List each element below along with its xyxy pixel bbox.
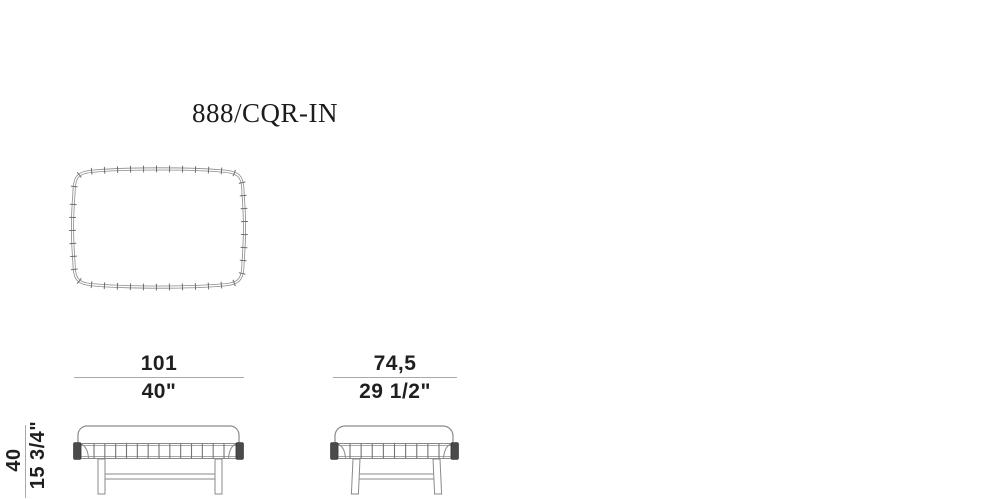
band-end-cap-left xyxy=(331,443,339,460)
height-dimension-line xyxy=(25,425,26,498)
stitch-tick xyxy=(91,281,92,288)
front-elevation-drawing xyxy=(65,418,260,499)
stretcher-side xyxy=(359,474,435,479)
stitch-tick xyxy=(221,282,222,289)
product-code: 888/CQR-IN xyxy=(192,98,338,129)
front-right-leg xyxy=(215,459,222,494)
height-metric: 40 xyxy=(3,422,25,498)
side-depth-imperial: 29 1/2" xyxy=(333,381,457,403)
stitch-tick xyxy=(91,168,92,175)
stretcher-front xyxy=(105,474,215,479)
band-end-cap-right xyxy=(236,443,244,460)
stitch-tick xyxy=(221,168,222,175)
spec-sheet: 888/CQR-IN 101 40" 74,5 29 1/2" 40 15 3/… xyxy=(0,0,1000,499)
side-left-leg xyxy=(351,459,360,494)
front-left-leg xyxy=(98,459,105,494)
side-depth-metric: 74,5 xyxy=(333,353,457,375)
stitch-tick xyxy=(71,186,78,187)
plan-view-drawing xyxy=(65,162,250,294)
side-depth-dimension-line xyxy=(333,377,457,378)
front-width-imperial: 40" xyxy=(74,381,244,403)
front-width-dimension-line xyxy=(74,377,244,378)
height-imperial: 15 3/4" xyxy=(27,415,49,495)
stitch-tick xyxy=(71,269,78,270)
side-right-leg xyxy=(433,459,442,494)
seat-outline xyxy=(73,169,245,287)
band-end-cap-left xyxy=(74,443,82,460)
band-end-cap-right xyxy=(451,443,459,460)
side-elevation-drawing xyxy=(325,418,465,499)
stitch-tick xyxy=(240,195,247,196)
front-width-metric: 101 xyxy=(74,353,244,375)
